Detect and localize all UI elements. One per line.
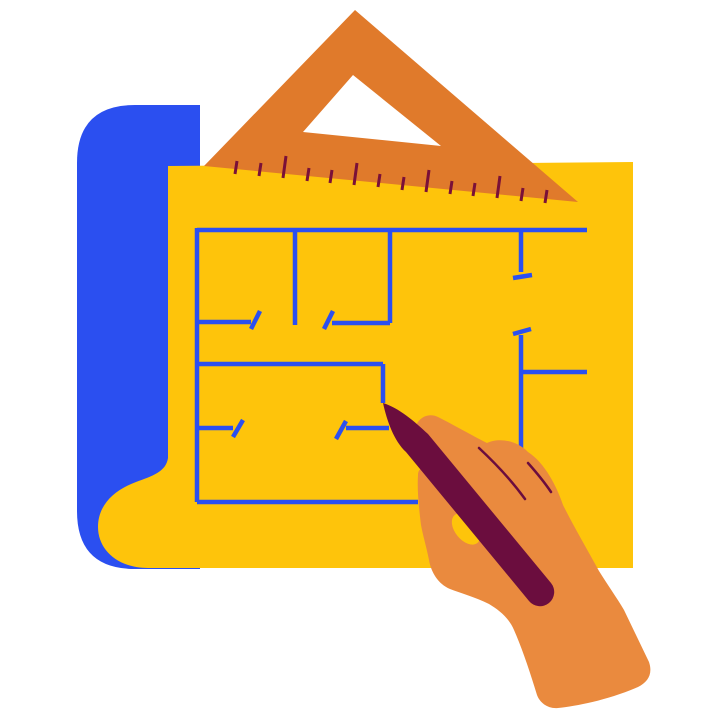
illustration-container: Flat vector illustration of a hand holdi… <box>0 0 720 720</box>
page: { "meta": { "title": "Blueprint drawing … <box>0 0 720 720</box>
illustration-canvas: Flat vector illustration of a hand holdi… <box>0 0 720 720</box>
